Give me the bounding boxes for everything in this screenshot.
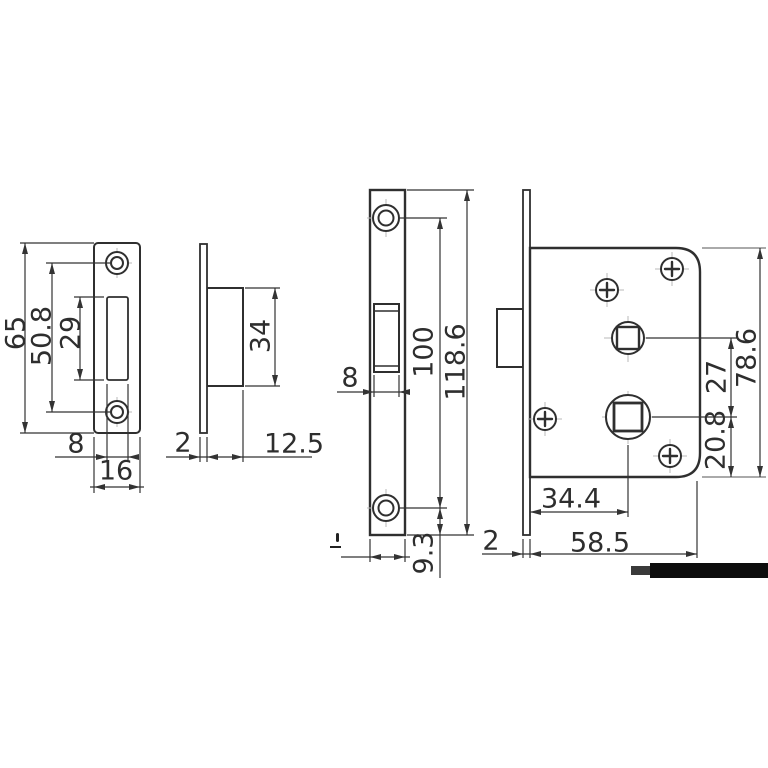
dim-plate-width: 16 <box>99 458 133 485</box>
dim-slot-width: 8 <box>67 431 84 458</box>
dim-faceplate-screw-spacing: 100 <box>411 326 438 378</box>
dim-screw-edge-offset: 9.3 <box>411 532 438 575</box>
clipped-dimension-mark <box>330 533 341 548</box>
dim-faceplate-height: 118.6 <box>443 323 470 400</box>
dim-body-depth: 58.5 <box>570 530 630 557</box>
dim-latch-width: 8 <box>341 365 358 392</box>
latch-bolt <box>497 309 523 367</box>
latch-slot <box>107 297 128 380</box>
redacted-watermark <box>631 563 768 578</box>
dim-backset: 34.4 <box>541 486 601 513</box>
dim-spindle-bottom-offset: 20.8 <box>703 410 730 470</box>
latch-opening <box>374 304 399 372</box>
dim-box-height: 34 <box>248 319 275 353</box>
plate-edge <box>200 244 207 433</box>
dim-plate-height: 65 <box>3 316 30 350</box>
lock-dimension-drawing <box>0 0 768 768</box>
dust-box <box>207 288 243 386</box>
dim-faceplate-thickness: 2 <box>482 528 499 555</box>
dim-spindle-spacing: 27 <box>704 360 731 394</box>
dim-plate-screw-spacing: 50.8 <box>29 306 56 366</box>
dim-body-height: 78.6 <box>734 328 761 388</box>
technical-drawing-canvas: 65 50.8 29 8 16 34 2 12.5 8 100 118.6 9.… <box>0 0 768 768</box>
dim-slot-height: 29 <box>58 316 85 350</box>
dim-box-depth: 12.5 <box>264 431 324 458</box>
dim-plate-thickness: 2 <box>174 430 191 457</box>
